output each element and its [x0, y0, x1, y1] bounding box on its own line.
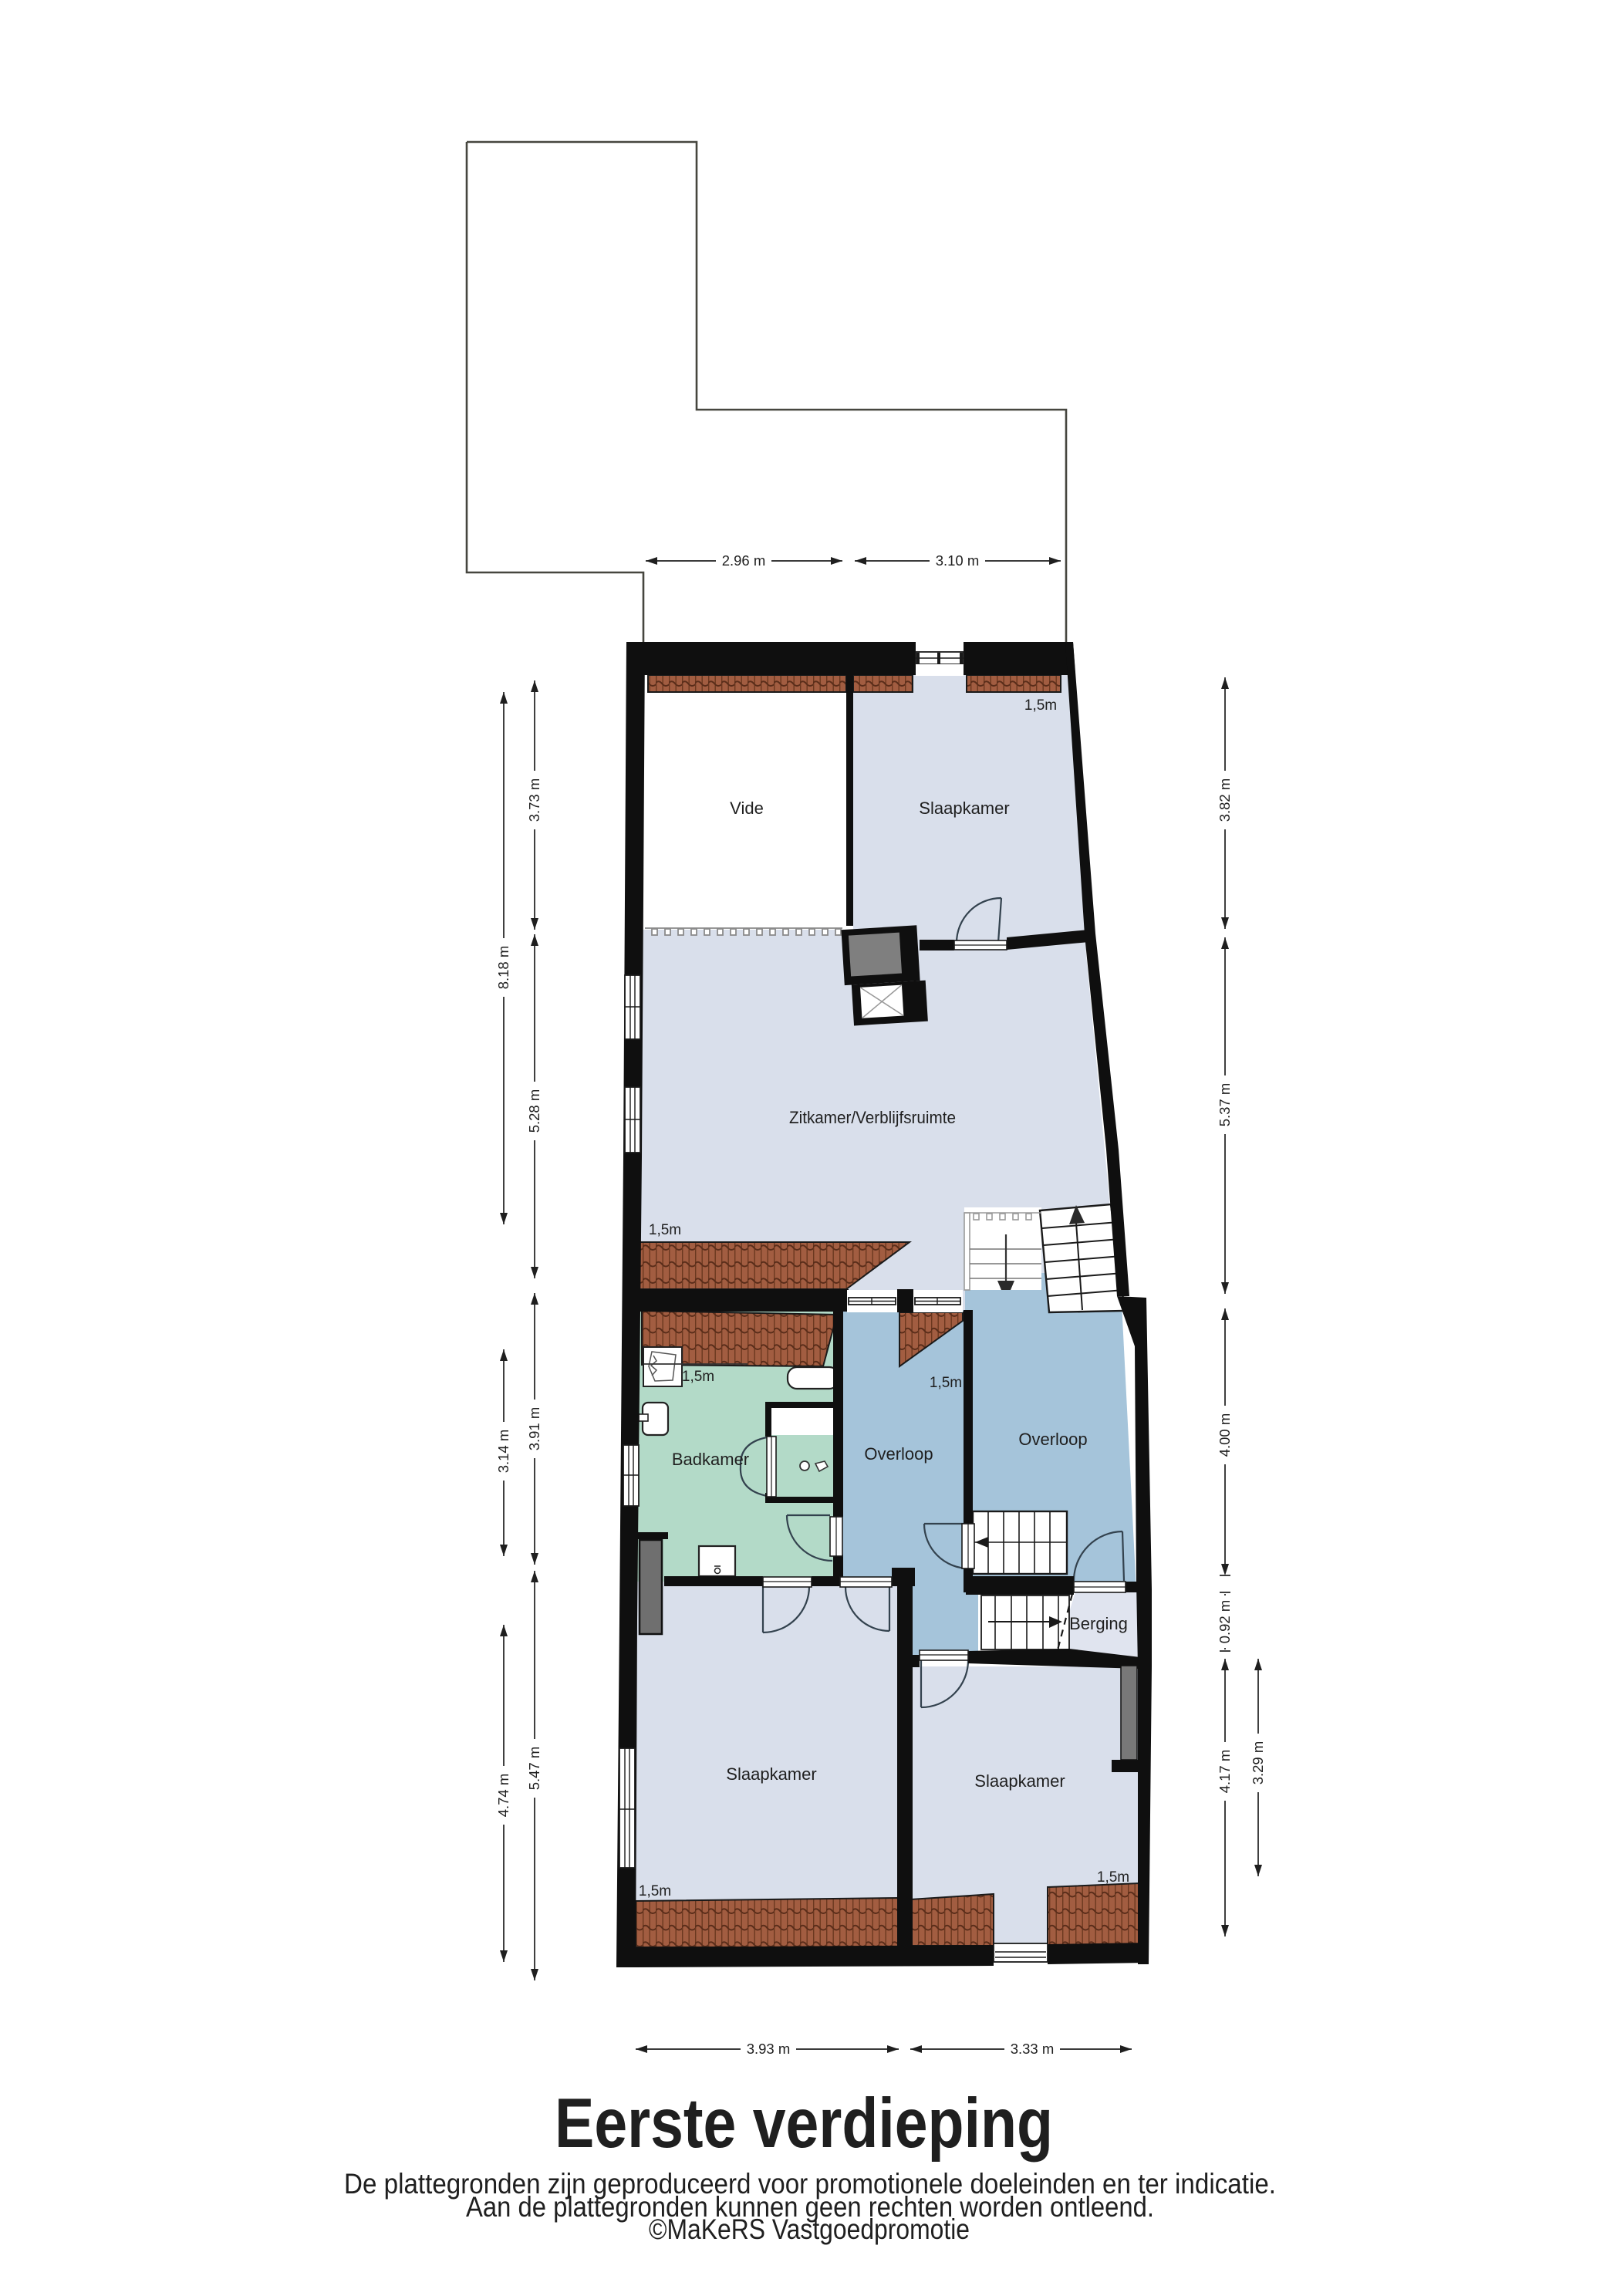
- svg-text:3.93 m: 3.93 m: [747, 2041, 791, 2057]
- svg-text:1,5m: 1,5m: [1024, 697, 1057, 714]
- svg-text:4.74 m: 4.74 m: [495, 1774, 511, 1818]
- svg-text:1,5m: 1,5m: [649, 1222, 681, 1238]
- svg-text:Slaapkamer: Slaapkamer: [974, 1771, 1065, 1791]
- svg-text:1,5m: 1,5m: [1097, 1869, 1129, 1886]
- svg-text:5.28 m: 5.28 m: [526, 1089, 542, 1133]
- svg-text:1,5m: 1,5m: [639, 1883, 671, 1899]
- svg-text:2.96 m: 2.96 m: [722, 552, 766, 569]
- svg-text:4.17 m: 4.17 m: [1217, 1750, 1233, 1794]
- svg-text:©MaKeRS Vastgoedpromotie: ©MaKeRS Vastgoedpromotie: [649, 2213, 970, 2245]
- svg-text:1,5m: 1,5m: [930, 1375, 962, 1391]
- svg-text:3.73 m: 3.73 m: [526, 778, 542, 822]
- svg-text:Overloop: Overloop: [1018, 1430, 1087, 1449]
- svg-text:Zitkamer/Verblijfsruimte: Zitkamer/Verblijfsruimte: [789, 1108, 956, 1127]
- svg-text:Slaapkamer: Slaapkamer: [919, 799, 1009, 818]
- svg-text:Berging: Berging: [1069, 1614, 1128, 1633]
- svg-text:Eerste verdieping: Eerste verdieping: [555, 2085, 1053, 2163]
- svg-text:4.00 m: 4.00 m: [1217, 1413, 1233, 1457]
- svg-text:Badkamer: Badkamer: [672, 1450, 749, 1469]
- svg-text:Vide: Vide: [730, 799, 764, 818]
- svg-text:5.47 m: 5.47 m: [526, 1747, 542, 1791]
- svg-text:Slaapkamer: Slaapkamer: [726, 1764, 816, 1784]
- svg-text:8.18 m: 8.18 m: [495, 946, 511, 990]
- svg-text:3.14 m: 3.14 m: [495, 1430, 511, 1474]
- svg-text:3.91 m: 3.91 m: [526, 1407, 542, 1451]
- svg-text:Overloop: Overloop: [864, 1444, 933, 1464]
- svg-text:1,5m: 1,5m: [682, 1369, 714, 1385]
- svg-text:3.10 m: 3.10 m: [936, 552, 980, 569]
- svg-text:0.92 m: 0.92 m: [1217, 1600, 1233, 1644]
- svg-text:3.33 m: 3.33 m: [1011, 2041, 1055, 2057]
- svg-text:5.37 m: 5.37 m: [1217, 1083, 1233, 1127]
- svg-text:3.29 m: 3.29 m: [1250, 1741, 1266, 1785]
- svg-text:3.82 m: 3.82 m: [1217, 778, 1233, 822]
